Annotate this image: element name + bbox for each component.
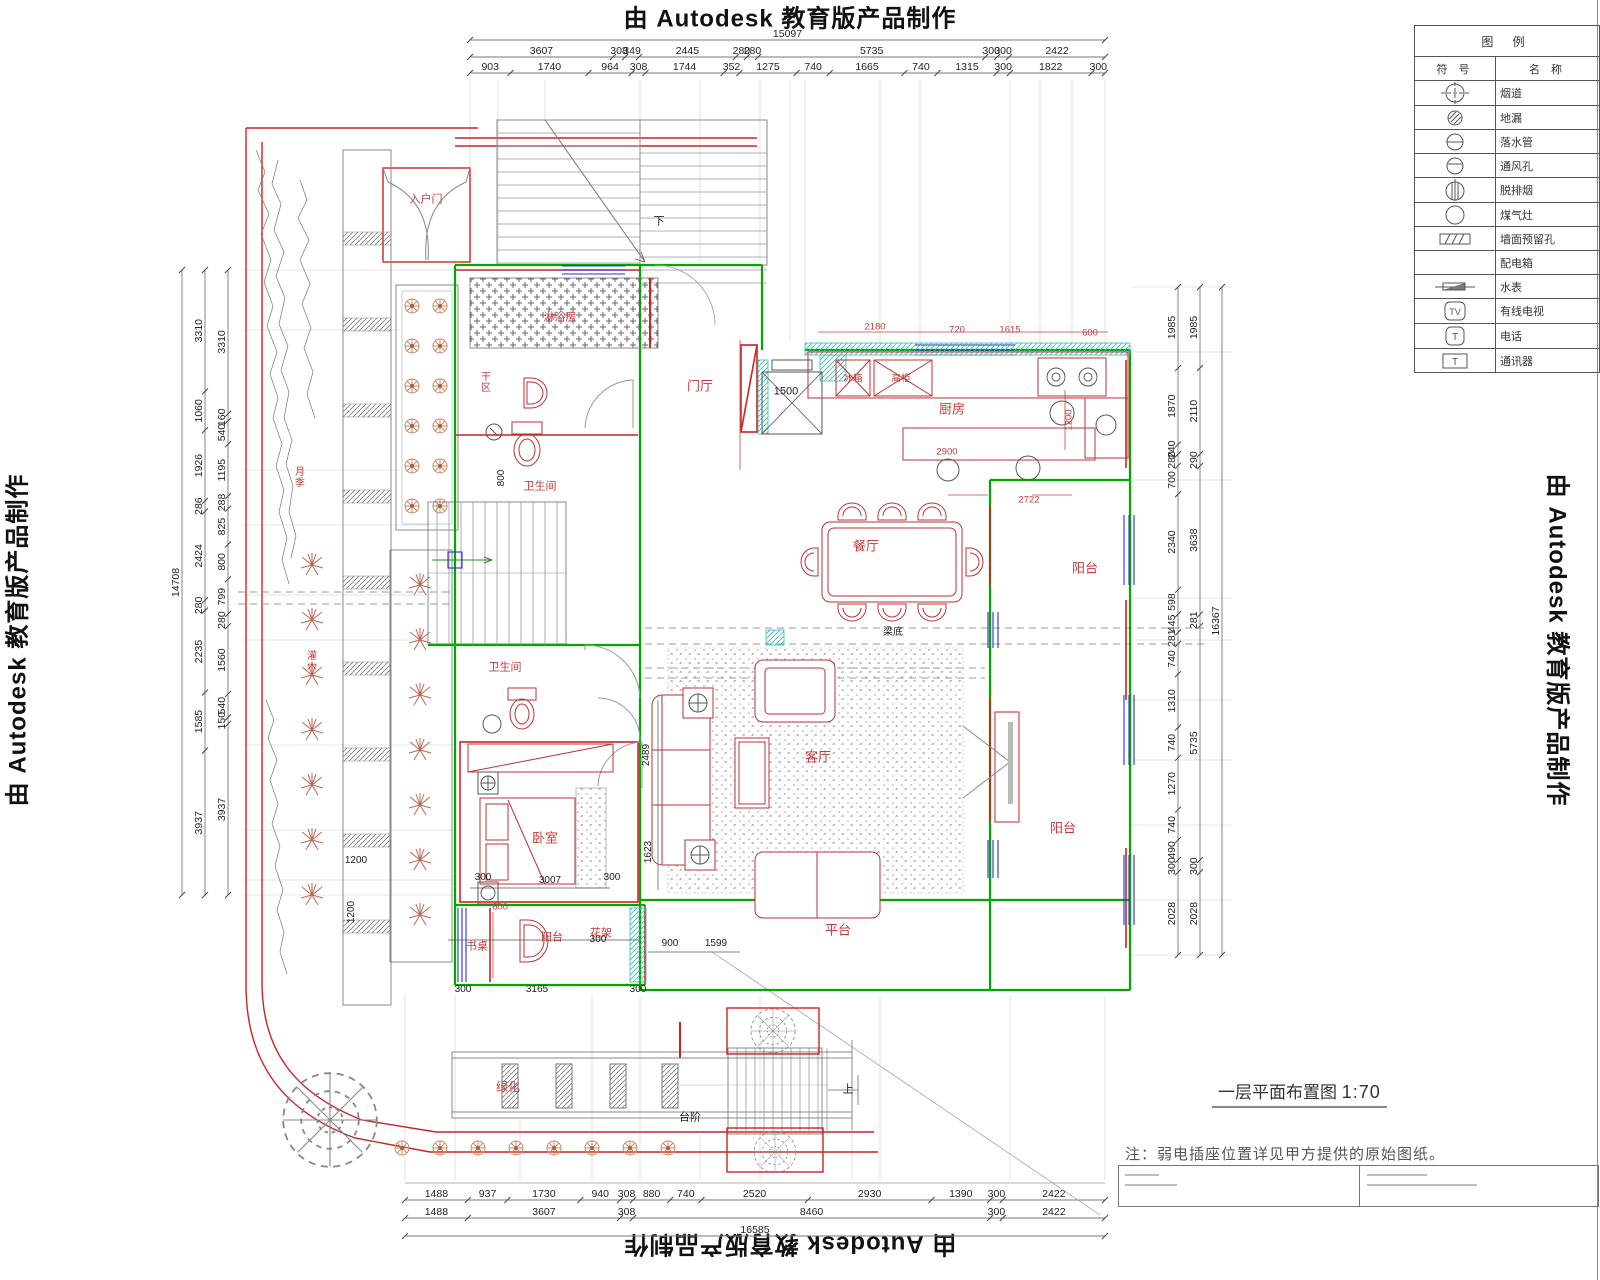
svg-text:1390: 1390 — [949, 1188, 973, 1200]
drawing-scale: 1:70 — [1342, 1082, 1381, 1102]
dining-set — [801, 503, 983, 621]
room-label-balcony-2: 阳台 — [1050, 822, 1076, 835]
plan-dim: 2900 — [936, 447, 957, 457]
tree-planters — [680, 1008, 823, 1173]
svg-text:150: 150 — [216, 712, 228, 730]
svg-text:740: 740 — [1166, 734, 1178, 752]
svg-text:T: T — [1452, 357, 1458, 368]
svg-text:300: 300 — [994, 61, 1012, 73]
svg-text:2340: 2340 — [1166, 530, 1178, 554]
room-label-foyer: 门厅 — [687, 380, 713, 393]
legend-symbol — [1415, 227, 1496, 251]
svg-text:598: 598 — [1166, 593, 1178, 611]
legend-symbol — [1415, 275, 1496, 299]
plan-dim: 300 — [455, 985, 472, 995]
svg-text:903: 903 — [481, 61, 499, 73]
plan-dim: 1623 — [644, 841, 654, 863]
svg-text:300: 300 — [988, 1206, 1006, 1218]
legend-symbol: TV — [1415, 299, 1496, 324]
room-label-terrace: 平台 — [825, 924, 851, 937]
plan-dim: 300 — [475, 873, 492, 883]
room-label-living: 客厅 — [805, 751, 831, 764]
svg-text:286: 286 — [193, 497, 205, 515]
svg-text:280: 280 — [216, 611, 228, 629]
svg-text:825: 825 — [216, 518, 228, 536]
room-label-bath-1: 卫生间 — [524, 482, 557, 493]
legend-symbol — [1415, 81, 1496, 106]
room-label-bath-2: 卫生间 — [489, 663, 522, 674]
svg-text:1488: 1488 — [425, 1206, 449, 1218]
svg-text:799: 799 — [216, 588, 228, 606]
svg-text:15097: 15097 — [773, 28, 802, 40]
svg-text:3638: 3638 — [1188, 528, 1200, 552]
drawing-title: 一层平面布置图 1:70 — [1212, 1078, 1387, 1108]
svg-text:740: 740 — [912, 61, 930, 73]
room-label-balcony-3: 阳台 — [541, 933, 563, 944]
svg-text:1985: 1985 — [1188, 316, 1200, 340]
stairs-top — [497, 120, 767, 283]
svg-text:1275: 1275 — [756, 61, 780, 73]
legend-row: 通风孔 — [1415, 154, 1600, 178]
legend-col-symbol: 符 号 — [1415, 57, 1496, 81]
dim-chain-left-inner: 3310160540119528882580079928015605401503… — [216, 267, 231, 898]
legend-symbol — [1415, 251, 1496, 275]
svg-text:T: T — [1452, 332, 1458, 343]
svg-text:3937: 3937 — [193, 811, 205, 835]
plan-dim: 2180 — [864, 322, 885, 332]
svg-text:2424: 2424 — [193, 544, 205, 568]
living-room-set — [652, 648, 963, 918]
legend-item-name: 烟道 — [1496, 81, 1600, 106]
legend-symbol: T — [1415, 349, 1496, 373]
svg-text:2422: 2422 — [1042, 1206, 1066, 1218]
room-label-kitchen: 厨房 — [939, 403, 965, 416]
svg-text:349: 349 — [623, 45, 641, 57]
dim-chain-bottom-row1: 1488937173094030888074025202930139030024… — [402, 1188, 1108, 1203]
label-greenery: 绿化 — [496, 1081, 520, 1093]
svg-text:1270: 1270 — [1166, 772, 1178, 796]
legend-symbol — [1415, 203, 1496, 227]
label-beam: 梁底 — [883, 628, 903, 638]
drawing-note: 注：弱电插座位置详见甲方提供的原始图纸。 — [1125, 1143, 1445, 1164]
dim-chain-right-inner: 1985187024028070023405984452817401310740… — [1166, 284, 1181, 958]
plan-dim: 720 — [949, 325, 965, 335]
legend-table: 图 例 符 号 名 称 烟道 地漏 落水管 通风孔 — [1414, 25, 1600, 373]
svg-text:288: 288 — [216, 494, 228, 512]
plan-dim: 300 — [604, 873, 621, 883]
svg-text:300: 300 — [1188, 857, 1200, 875]
plan-dim: 3007 — [539, 876, 561, 886]
svg-text:280: 280 — [193, 596, 205, 614]
svg-text:160: 160 — [216, 408, 228, 426]
legend-item-name: 落水管 — [1496, 130, 1600, 154]
svg-text:540: 540 — [216, 697, 228, 715]
dim-chain-bottom-row2: 1488360730884603002422 — [402, 1206, 1108, 1221]
plan-dim: 1500 — [774, 387, 798, 398]
plan-dim: 900 — [662, 939, 679, 949]
svg-text:280: 280 — [744, 45, 762, 57]
room-label-balcony-1: 阳台 — [1072, 562, 1098, 575]
plan-dim: 2722 — [1018, 495, 1039, 505]
legend-row: 落水管 — [1415, 130, 1600, 154]
svg-text:1926: 1926 — [193, 454, 205, 478]
svg-text:490: 490 — [1166, 841, 1178, 859]
svg-text:2445: 2445 — [676, 45, 700, 57]
legend-col-name: 名 称 — [1496, 57, 1600, 81]
dim-chain-top-row1: 3607308349244528028057353003002422 — [467, 45, 1108, 60]
plan-dim: 1200 — [345, 856, 367, 866]
legend-row: 煤气灶 — [1415, 203, 1600, 227]
title-block-cell-2 — [1359, 1166, 1598, 1206]
legend-symbol — [1415, 154, 1496, 178]
label-tall-cabinet: 高柜 — [891, 374, 910, 384]
label-entry-door: 入户门 — [410, 195, 443, 206]
kitchen-fixtures — [808, 352, 1128, 481]
svg-text:5735: 5735 — [1188, 731, 1200, 755]
svg-text:540: 540 — [216, 424, 228, 442]
svg-text:1665: 1665 — [855, 61, 879, 73]
label-up-arrow: 上 — [843, 1085, 854, 1096]
corner-tree — [283, 1073, 377, 1167]
legend-item-name: 煤气灶 — [1496, 203, 1600, 227]
svg-text:1195: 1195 — [216, 459, 228, 482]
svg-text:8460: 8460 — [800, 1206, 824, 1218]
svg-text:300: 300 — [1090, 61, 1108, 73]
legend-symbol — [1415, 130, 1496, 154]
plan-dim: 300 — [630, 985, 647, 995]
dim-chain-left-total: 14708 — [170, 267, 185, 898]
svg-text:800: 800 — [216, 553, 228, 571]
svg-text:2028: 2028 — [1188, 902, 1200, 926]
label-fridge: 冰箱 — [843, 374, 862, 384]
stairs-bottom — [712, 952, 1100, 1215]
svg-text:1560: 1560 — [216, 648, 228, 672]
legend-symbol — [1415, 106, 1496, 130]
legend-symbol: T — [1415, 324, 1496, 349]
legend-item-name: 配电箱 — [1496, 251, 1600, 275]
flower-row-bottom — [395, 1141, 675, 1155]
svg-text:308: 308 — [618, 1188, 636, 1200]
svg-text:1060: 1060 — [193, 399, 205, 423]
label-desk: 书桌 — [466, 942, 488, 953]
drawing-title-text: 一层平面布置图 — [1218, 1083, 1337, 1102]
legend-row: 水表 — [1415, 275, 1600, 299]
legend-row: T 通讯器 — [1415, 349, 1600, 373]
label-steps: 台阶 — [679, 1113, 701, 1124]
flower-bed — [405, 299, 447, 513]
cad-sheet: { "watermark": {"text": "由 Autodesk 教育版产… — [0, 0, 1600, 1280]
svg-text:1870: 1870 — [1166, 394, 1178, 418]
svg-text:1740: 1740 — [538, 61, 562, 73]
svg-text:740: 740 — [1166, 816, 1178, 834]
svg-text:1985: 1985 — [1166, 316, 1178, 340]
dim-chain-right-mid: 19852110290363828157353002028 — [1188, 284, 1203, 958]
svg-text:14708: 14708 — [170, 568, 182, 597]
svg-text:16585: 16585 — [740, 1224, 769, 1236]
label-down-arrow: 下 — [654, 217, 665, 228]
svg-text:5735: 5735 — [860, 45, 884, 57]
dim-chain-right-total: 16367 — [1210, 284, 1225, 958]
legend-row: 烟道 — [1415, 81, 1600, 106]
plan-dim: 600 — [1082, 328, 1098, 338]
svg-text:300: 300 — [988, 1188, 1006, 1200]
svg-text:3937: 3937 — [216, 798, 228, 822]
svg-text:2110: 2110 — [1188, 400, 1200, 423]
svg-text:3607: 3607 — [532, 1206, 556, 1218]
plan-dim: 300 — [590, 935, 607, 945]
svg-text:3310: 3310 — [193, 319, 205, 343]
svg-text:1730: 1730 — [532, 1188, 556, 1200]
label-plant-shrub: 灌木 — [305, 651, 319, 673]
dim-chain-bottom-total: 16585 — [402, 1224, 1108, 1239]
legend-item-name: 有线电视 — [1496, 299, 1600, 324]
legend-row: TV 有线电视 — [1415, 299, 1600, 324]
svg-text:2520: 2520 — [743, 1188, 767, 1200]
stairs-interior — [428, 502, 566, 644]
svg-text:352: 352 — [723, 61, 741, 73]
svg-text:281: 281 — [1188, 611, 1200, 629]
room-label-shower: 淋浴房 — [544, 313, 577, 324]
svg-text:1488: 1488 — [425, 1188, 449, 1200]
plan-dim: 1200 — [1064, 409, 1074, 430]
legend-row: 脱排烟 — [1415, 178, 1600, 203]
legend-item-name: 地漏 — [1496, 106, 1600, 130]
plan-dim: 800 — [497, 470, 507, 487]
svg-text:300: 300 — [1166, 857, 1178, 875]
svg-text:937: 937 — [479, 1188, 497, 1200]
legend-title: 图 例 — [1415, 26, 1600, 57]
svg-text:2422: 2422 — [1042, 1188, 1066, 1200]
dim-chain-top-row2: 9031740964308174435212757401665740131530… — [467, 61, 1108, 76]
svg-text:300: 300 — [994, 45, 1012, 57]
svg-text:2930: 2930 — [858, 1188, 882, 1200]
svg-text:3310: 3310 — [216, 330, 228, 354]
legend-item-name: 墙面预留孔 — [1496, 227, 1600, 251]
legend-row: 地漏 — [1415, 106, 1600, 130]
svg-text:1310: 1310 — [1166, 689, 1178, 713]
label-plant-rose: 月季 — [293, 467, 307, 489]
room-label-dining: 餐厅 — [853, 540, 879, 553]
plan-dim: 2489 — [642, 744, 652, 766]
svg-text:308: 308 — [618, 1206, 636, 1218]
entry-door-leaves — [383, 168, 470, 260]
plan-dim: 1599 — [705, 939, 727, 949]
svg-text:2235: 2235 — [193, 640, 205, 664]
left-planter-column — [343, 150, 458, 1005]
svg-text:1585: 1585 — [193, 710, 205, 734]
svg-text:740: 740 — [804, 61, 822, 73]
room-label-dry-area: 干区 — [479, 372, 493, 394]
legend-item-name: 通风孔 — [1496, 154, 1600, 178]
svg-text:290: 290 — [1188, 451, 1200, 469]
title-block-cell-1 — [1119, 1166, 1360, 1206]
svg-text:TV: TV — [1449, 307, 1461, 317]
svg-text:2028: 2028 — [1166, 902, 1178, 926]
svg-text:1822: 1822 — [1039, 61, 1063, 73]
svg-text:280: 280 — [1166, 451, 1178, 469]
svg-text:2422: 2422 — [1045, 45, 1069, 57]
plan-dim: 600 — [492, 902, 508, 912]
legend-symbol — [1415, 178, 1496, 203]
legend-item-name: 水表 — [1496, 275, 1600, 299]
svg-text:1744: 1744 — [673, 61, 697, 73]
svg-text:740: 740 — [677, 1188, 695, 1200]
dim-chain-top-total: 15097 — [467, 28, 1108, 43]
dim-chain-left-mid: 3310106019262862424280223515853937 — [193, 267, 208, 898]
svg-text:308: 308 — [630, 61, 648, 73]
svg-text:940: 940 — [591, 1188, 609, 1200]
title-block — [1118, 1165, 1599, 1207]
plan-dim: 1615 — [999, 325, 1020, 335]
legend-row: 墙面预留孔 — [1415, 227, 1600, 251]
svg-text:700: 700 — [1166, 471, 1178, 489]
svg-text:16367: 16367 — [1210, 606, 1222, 635]
svg-text:3607: 3607 — [530, 45, 554, 57]
legend-row: 配电箱 — [1415, 251, 1600, 275]
legend-item-name: 脱排烟 — [1496, 178, 1600, 203]
svg-text:740: 740 — [1166, 650, 1178, 668]
shrub-row-outer — [301, 553, 323, 905]
bamboo-scribble — [256, 150, 315, 974]
svg-text:880: 880 — [643, 1188, 661, 1200]
legend-item-name: 通讯器 — [1496, 349, 1600, 373]
plan-dim: 3165 — [526, 985, 548, 995]
plan-dim: 1200 — [347, 901, 357, 923]
legend-item-name: 电话 — [1496, 324, 1600, 349]
legend-row: T 电话 — [1415, 324, 1600, 349]
room-label-bedroom: 卧室 — [532, 832, 558, 845]
svg-text:1315: 1315 — [955, 61, 979, 73]
svg-text:964: 964 — [601, 61, 619, 73]
